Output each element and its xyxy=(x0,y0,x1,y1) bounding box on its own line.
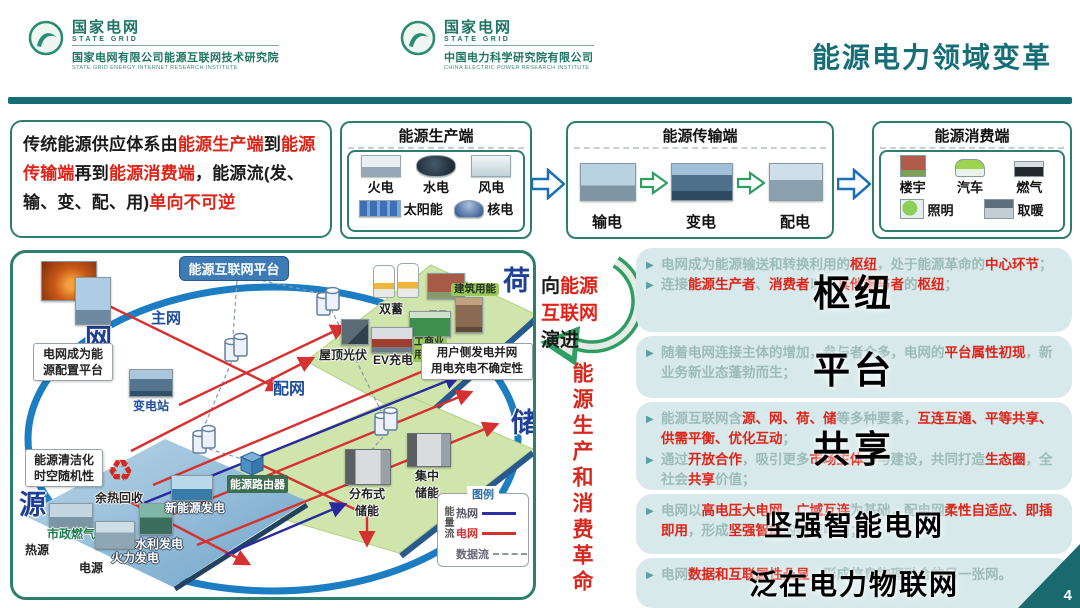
intro-text: 传统能源供应体系由能源生产端到能源传输端再到能源消费端，能源流(发、输、变、配、… xyxy=(23,135,315,212)
substation-photo xyxy=(671,163,733,201)
legend-heat-line xyxy=(482,512,516,515)
state-grid-emblem-icon xyxy=(28,20,64,56)
point-box-platform: ▶随着电网连接主体的增加，参与者众多，电网的平台属性初现，新业务新业态蓬勃而生；… xyxy=(636,336,1072,398)
flow-arrow-blue-icon xyxy=(837,168,871,200)
building-label: 楼宇 xyxy=(900,177,926,196)
corner-label-load: 荷 xyxy=(503,259,530,298)
evolve-line-3: 演进 xyxy=(541,328,605,355)
bullet-arrow-icon: ▶ xyxy=(646,275,661,295)
transform-label: 变电 xyxy=(686,211,716,232)
storage-canister-icon xyxy=(397,263,419,298)
lighting-icon xyxy=(900,199,924,219)
legend-flow-group-label: 能量流 xyxy=(440,506,455,539)
overlay-word-hub: 枢纽 xyxy=(813,263,895,317)
bullet-arrow-icon: ▶ xyxy=(646,409,661,450)
storage-canister-icon xyxy=(373,265,395,298)
substation-label: 变电站 xyxy=(133,397,169,414)
industry-energy-photo xyxy=(409,311,451,337)
building-icon xyxy=(900,155,926,177)
flow-arrow-blue-icon xyxy=(531,168,565,200)
energy-consumption-inner: 楼宇 汽车 燃气 照明 取暖 xyxy=(879,150,1065,232)
evolve-line-1: 向能源 xyxy=(541,274,605,301)
flow-arrow-green-icon xyxy=(640,171,668,195)
overlay-word-sharing: 共享 xyxy=(813,419,895,473)
thermal-power-icon xyxy=(361,155,401,177)
legend-heat-label: 热网 xyxy=(456,505,478,521)
corner-label-storage: 储 xyxy=(511,401,536,440)
energy-production-title: 能源生产端 xyxy=(342,123,530,146)
logo-name-cn: 国家电网 xyxy=(72,20,279,36)
transmission-tower-photo xyxy=(580,163,636,201)
legend-box: 图例 能量流 热网 电网 数据流 xyxy=(437,493,529,567)
slide: 国家电网 STATE GRID 国家电网有限公司能源互联网技术研究院 STATE… xyxy=(0,0,1080,608)
heating-icon xyxy=(984,199,1014,219)
distribution-photo xyxy=(769,163,823,201)
rooftop-pv-label: 屋顶光伏 xyxy=(319,346,367,363)
evolve-text: 向能源 互联网 演进 xyxy=(541,274,605,355)
transmission-label: 输电 xyxy=(592,211,622,232)
energy-transmission-box: 能源传输端 输电 变电 配电 xyxy=(566,121,834,239)
logo-org-cn: 国家电网有限公司能源互联网技术研究院 xyxy=(72,49,279,65)
hydro-gen-label: 水利发电 xyxy=(135,535,183,552)
resident-energy-photo xyxy=(455,297,483,333)
legend-data-line xyxy=(493,553,527,555)
logo-org-en: STATE GRID ENERGY INTERNET RESEARCH INST… xyxy=(72,65,279,71)
car-label: 汽车 xyxy=(957,177,983,196)
logo-name-en: STATE GRID xyxy=(72,36,279,46)
state-grid-emblem-icon xyxy=(400,20,436,56)
solar-power-label: 太阳能 xyxy=(404,199,443,218)
corner-label-source: 源 xyxy=(19,483,46,522)
page-title: 能源电力领域变革 xyxy=(812,36,1052,76)
evolve-line-2: 互联网 xyxy=(541,301,605,328)
legend-data-label: 数据流 xyxy=(456,546,489,562)
heating-label: 取暖 xyxy=(1017,200,1043,219)
dual-storage-label: 双蓄 xyxy=(379,300,403,317)
ev-charging-label: EV充电 xyxy=(373,351,413,368)
solar-panel-icon xyxy=(359,200,401,217)
new-energy-gen-photo xyxy=(171,475,213,501)
new-energy-gen-label: 新能源发电 xyxy=(165,499,225,516)
tower-photo xyxy=(75,277,111,325)
energy-internet-diagram: 能源互联网平台 网 荷 储 源 电网成为能 源配置平台 主网 变电站 配网 双蓄… xyxy=(10,250,536,600)
overlay-word-platform: 平台 xyxy=(813,340,895,394)
city-gas-label: 市政燃气 xyxy=(47,525,95,542)
bullet-arrow-icon: ▶ xyxy=(646,255,661,275)
bullet-arrow-icon: ▶ xyxy=(646,343,661,384)
key-points-panel: ▶电网成为能源输送和转换利用的枢纽，处于能源革命的中心环节； ▶连接能源生产者、… xyxy=(636,248,1072,608)
distributed-storage-photo xyxy=(345,449,391,485)
grid-callout: 电网成为能 源配置平台 xyxy=(33,343,113,381)
distributed-storage-label: 分布式 储能 xyxy=(349,485,385,519)
energy-router-label: 能源路由器 xyxy=(227,475,288,493)
logo-cepri: 国家电网 STATE GRID 中国电力科学研究院有限公司 CHINA ELEC… xyxy=(400,20,594,71)
nuclear-power-label: 核电 xyxy=(487,199,513,218)
car-icon xyxy=(955,159,985,177)
point-box-hub: ▶电网成为能源输送和转换利用的枢纽，处于能源革命的中心环节； ▶连接能源生产者、… xyxy=(636,248,1072,332)
logo-sgcc-energy-internet: 国家电网 STATE GRID 国家电网有限公司能源互联网技术研究院 STATE… xyxy=(28,20,279,71)
recycle-icon: ♻ xyxy=(107,457,134,487)
point-box-sharing: ▶能源互联网含源、网、荷、储等多种要素，互连互通、平等共享、供需平衡、优化互动；… xyxy=(636,402,1072,490)
power-source-label: 电源 xyxy=(79,559,103,576)
dashed-divider xyxy=(348,147,524,149)
wind-power-label: 风电 xyxy=(478,177,504,196)
legend-title: 图例 xyxy=(467,486,499,502)
waste-heat-label: 余热回收 xyxy=(95,489,143,506)
logo-name-en: STATE GRID xyxy=(444,36,594,46)
point-box-ubiquitous-iot: ▶电网数据和互联属性凸显，形成信息物理融合的另一张网。 泛在电力物联网 xyxy=(636,558,1072,608)
nuclear-plant-icon xyxy=(454,200,484,218)
dashed-divider xyxy=(880,147,1064,149)
heat-source-label: 热源 xyxy=(25,541,49,558)
logo-org-cn: 中国电力科学研究院有限公司 xyxy=(444,49,594,65)
wind-turbine-icon xyxy=(471,155,511,177)
centralized-storage-photo xyxy=(407,433,451,467)
main-grid-label: 主网 xyxy=(151,307,181,328)
source-callout: 能源清洁化 时空随机性 xyxy=(25,449,103,487)
rooftop-pv-photo xyxy=(341,319,369,345)
page-number: 4 xyxy=(1064,587,1072,604)
flow-arrow-green-icon xyxy=(737,171,765,195)
distribution-label: 配电 xyxy=(780,211,810,232)
dist-grid-label: 配网 xyxy=(273,375,305,399)
logo-name-cn: 国家电网 xyxy=(444,20,594,36)
energy-production-box: 能源生产端 火电 水电 风电 太阳能 核电 xyxy=(340,121,532,239)
platform-label: 能源互联网平台 xyxy=(179,256,289,281)
energy-consumption-box: 能源消费端 楼宇 汽车 燃气 照明 取暖 xyxy=(872,121,1072,239)
building-energy-label: 建筑用能 xyxy=(451,283,499,296)
energy-consumption-title: 能源消费端 xyxy=(874,123,1070,146)
ev-charging-photo xyxy=(371,327,413,353)
thermal-gen-photo xyxy=(95,521,135,549)
overlay-word-ubiquitous-iot: 泛在电力物联网 xyxy=(749,563,959,603)
gas-label: 燃气 xyxy=(1016,177,1042,196)
legend-power-label: 电网 xyxy=(456,525,478,541)
energy-production-inner: 火电 水电 风电 太阳能 核电 xyxy=(347,150,525,232)
legend-power-line xyxy=(482,532,516,535)
logo-org-en: CHINA ELECTRIC POWER RESEARCH INSTITUTE xyxy=(444,65,594,71)
substation-photo-small xyxy=(129,369,173,397)
header-divider xyxy=(8,97,1072,104)
point-box-strong-smart-grid: ▶电网以高电压大电网、广域互连为基础，配电网柔性自适应、即插即用，形成坚强智能的… xyxy=(636,494,1072,554)
intro-text-box: 传统能源供应体系由能源生产端到能源传输端再到能源消费端，能源流(发、输、变、配、… xyxy=(10,120,332,238)
load-callout: 用户侧发电并网 用电充电不确定性 xyxy=(421,343,533,380)
gas-stove-icon xyxy=(1014,161,1044,177)
revolution-vertical-text: 能源生产和消费革命 xyxy=(566,362,596,602)
lighting-label: 照明 xyxy=(927,200,953,219)
bullet-arrow-icon: ▶ xyxy=(646,501,661,542)
bullet-arrow-icon: ▶ xyxy=(646,450,661,491)
energy-transmission-title: 能源传输端 xyxy=(568,123,832,146)
centralized-storage-label: 集中 储能 xyxy=(415,467,439,501)
bullet-arrow-icon: ▶ xyxy=(646,565,661,585)
overlay-word-strong-smart-grid: 坚强智能电网 xyxy=(764,504,944,544)
hydro-power-label: 水电 xyxy=(423,177,449,196)
dashed-divider xyxy=(574,147,826,149)
thermal-power-label: 火电 xyxy=(368,177,394,196)
hydro-power-icon xyxy=(416,155,456,177)
